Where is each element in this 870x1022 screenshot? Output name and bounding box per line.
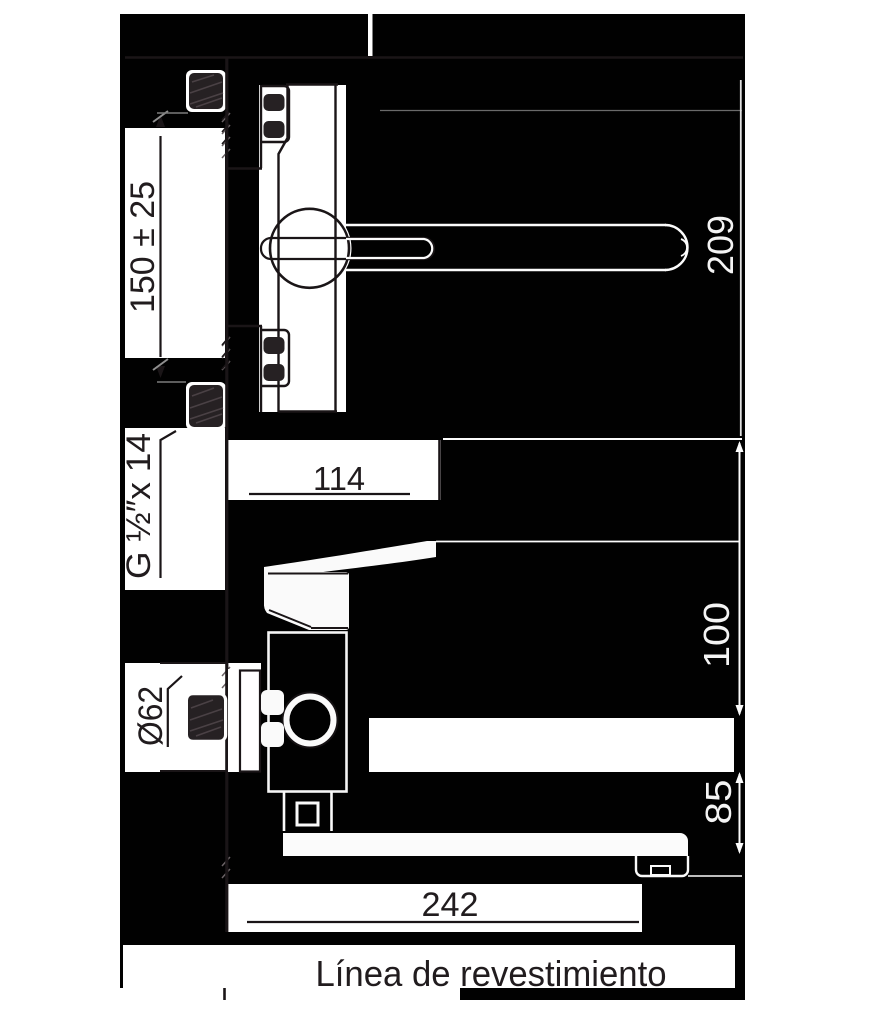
svg-text:G ½″x 14: G ½″x 14 <box>120 433 158 579</box>
svg-text:100: 100 <box>696 602 737 668</box>
svg-text:Ø62: Ø62 <box>132 686 170 746</box>
svg-text:Línea de revestimiento: Línea de revestimiento <box>316 953 667 994</box>
svg-text:242: 242 <box>422 886 479 924</box>
svg-text:85: 85 <box>698 780 739 825</box>
svg-text:114: 114 <box>313 460 365 497</box>
svg-text:209: 209 <box>700 215 741 275</box>
svg-text:150 ± 25: 150 ± 25 <box>124 181 162 313</box>
